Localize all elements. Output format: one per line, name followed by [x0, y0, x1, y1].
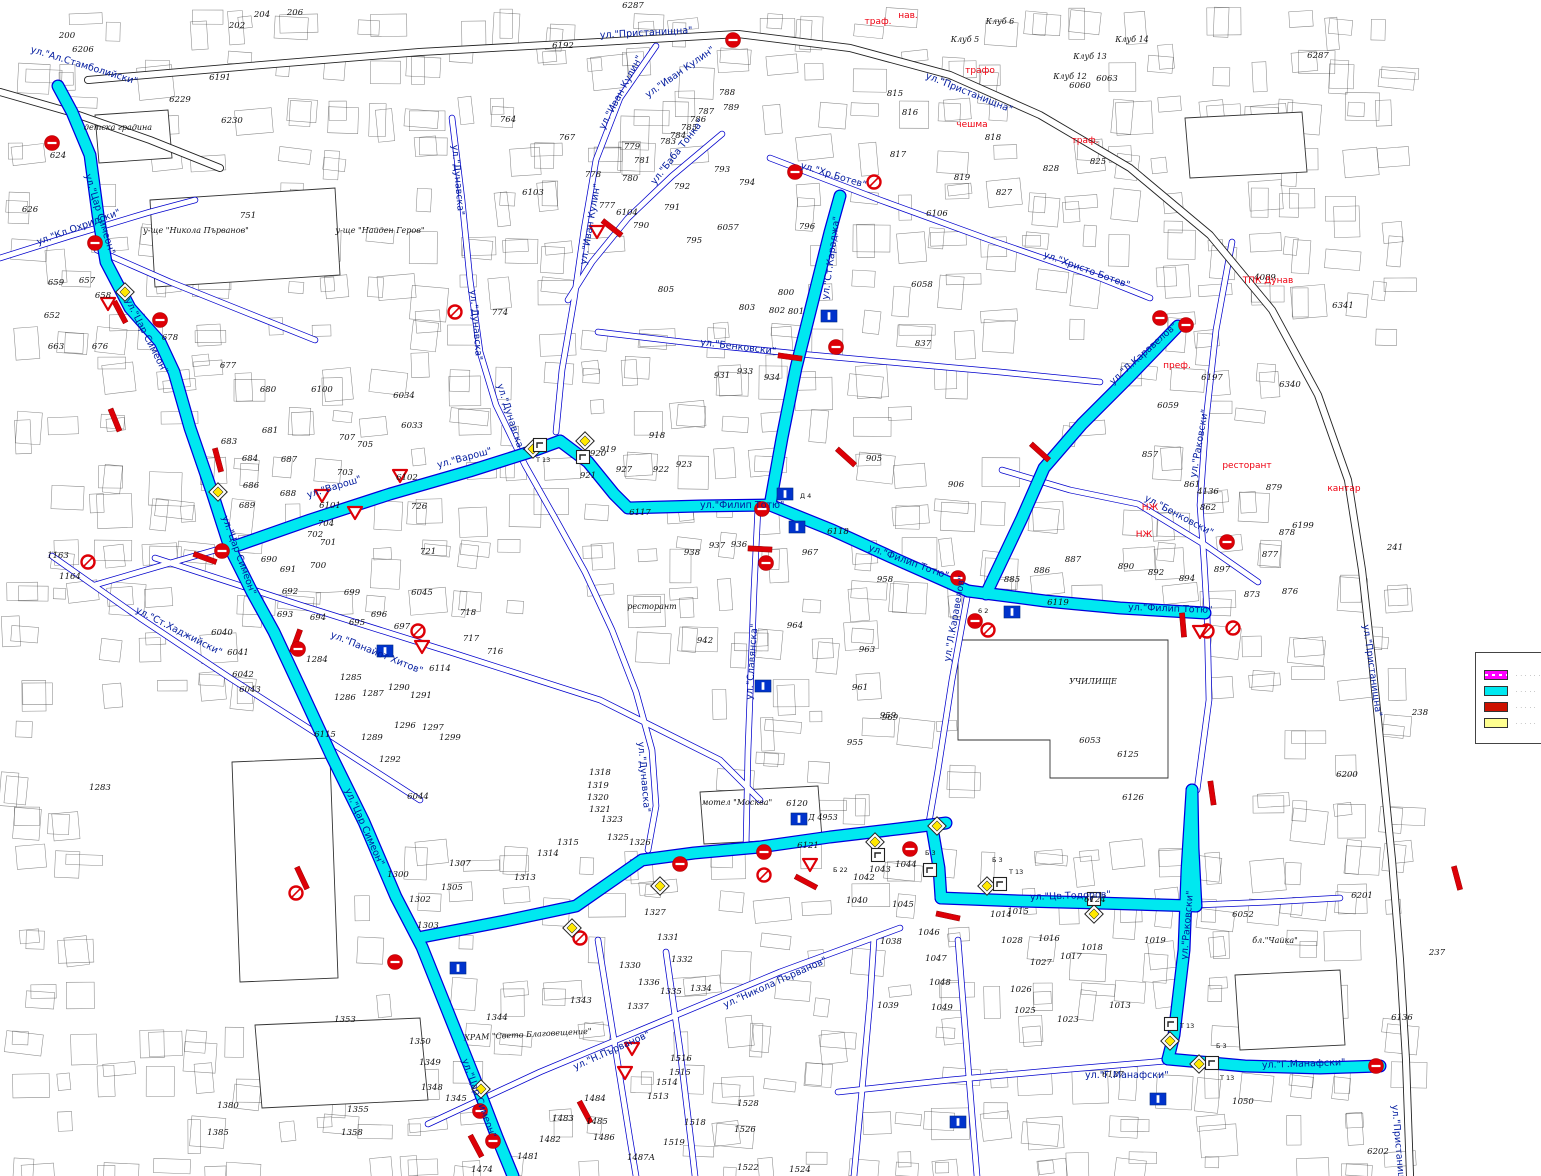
parcel-number: 1047 [925, 954, 947, 964]
parcel-number: 876 [1282, 587, 1299, 597]
parcel-number: 1289 [361, 733, 383, 743]
parcel-number: 1334 [690, 984, 712, 994]
parcel-number: 721 [420, 547, 436, 557]
street-label: ул."Л.Каравелов" [1108, 321, 1180, 387]
parcel-number: 942 [697, 636, 713, 646]
parcel-number: 815 [887, 89, 903, 99]
parcel-number: 1344 [486, 1013, 508, 1023]
parcel-number: 938 [684, 548, 701, 558]
parcel-number: 1027 [1030, 958, 1052, 968]
parcel-number: 1023 [1057, 1015, 1079, 1025]
parcel-number: 963 [859, 645, 875, 655]
parcel-number: 767 [559, 133, 576, 143]
parcel-number: 1302 [409, 895, 431, 905]
landmark-label: Д 4953 [807, 813, 837, 822]
sign-code-label: Б 3 [925, 849, 936, 857]
parcel-number: 202 [228, 21, 245, 31]
parcel-number: 6201 [1351, 891, 1373, 901]
legend-title: · · [1484, 659, 1541, 664]
parcel-number: 6104 [616, 208, 638, 218]
parcel-number: 818 [985, 133, 1002, 143]
parcel-number: 791 [664, 203, 680, 213]
parcel-number: 1485 [586, 1117, 608, 1127]
parcel-number: 676 [92, 342, 109, 352]
parcel-number: 1300 [387, 870, 409, 880]
legend-item-closed: · · · · · [1484, 702, 1541, 712]
parcel-number: 683 [221, 437, 237, 447]
parcel-number: 927 [616, 465, 633, 475]
parcel-number: 787 [698, 107, 715, 117]
road-closure-bar-icon [1029, 442, 1050, 462]
parcel-number: 688 [280, 489, 297, 499]
parcel-number: 1380 [217, 1101, 239, 1111]
parcel-number: 877 [1262, 550, 1279, 560]
parcel-number: 6192 [552, 41, 574, 51]
parcel-number: 805 [658, 285, 674, 295]
parcel-number: 933 [737, 367, 753, 377]
parcel-number: 6125 [1117, 750, 1139, 760]
parcel-number: 1164 [59, 572, 81, 582]
road-closure-bar-icon [794, 874, 818, 890]
facility-label-red: нав. [898, 11, 918, 21]
landmark-label: Клуб 5 [950, 35, 979, 44]
parcel-number: 1349 [419, 1058, 441, 1068]
parcel-number: 1292 [379, 755, 401, 765]
parcel-number: 1526 [734, 1125, 756, 1135]
parcel-number: 781 [634, 156, 650, 166]
parcel-number: 1330 [619, 961, 641, 971]
sign-code-label: Т 13 [1008, 868, 1023, 876]
parcel-number: 687 [281, 455, 298, 465]
parcel-number: 1481 [517, 1152, 539, 1162]
parcel-number: 1522 [737, 1163, 759, 1173]
parcel-number: 6200 [1336, 770, 1358, 780]
road-closure-bar-icon [212, 448, 223, 473]
parcel-number: 6340 [1279, 380, 1301, 390]
landmark-label: у-ще "Найден Геров" [334, 226, 424, 235]
sign-code-label: Т 13 [1219, 1074, 1234, 1082]
parcel-number: 691 [280, 565, 296, 575]
parcel-number: 879 [1266, 483, 1283, 493]
parcel-number: 816 [902, 108, 919, 118]
parcel-number: 1043 [869, 865, 891, 875]
parcel-number: 1483 [552, 1114, 574, 1124]
parcel-number: 700 [310, 561, 327, 571]
parcel-number: 857 [1142, 450, 1159, 460]
parcel-number: 1524 [789, 1165, 811, 1175]
landmark-label: УЧИЛИЩЕ [1069, 677, 1117, 686]
parcel-number: 905 [866, 454, 882, 464]
parcel-number: 1335 [660, 987, 682, 997]
yield-sign-icon [803, 859, 817, 871]
parcel-number: 958 [877, 575, 894, 585]
parcel-number: 1348 [421, 1083, 443, 1093]
parcel-number: 694 [310, 613, 326, 623]
parcel-number: 1290 [388, 683, 410, 693]
parcel-number: 1519 [663, 1138, 685, 1148]
parcel-number: 1487А [627, 1153, 655, 1163]
parcel-number: 6101 [319, 501, 341, 511]
parcel-number: 1318 [589, 768, 611, 778]
parcel-number: 1299 [439, 733, 461, 743]
parcel-number: 6102 [396, 473, 418, 483]
parcel-number: 1353 [334, 1015, 356, 1025]
parcel-number: 1305 [441, 883, 463, 893]
legend-label: · · · · · [1516, 721, 1536, 726]
parcel-number: 658 [95, 291, 112, 301]
parcel-number: 1016 [1038, 934, 1060, 944]
parcel-number: 796 [799, 222, 816, 232]
street-label: ул."Цар Симеон" [342, 787, 386, 868]
parcel-number: 918 [649, 431, 666, 441]
parcel-number: 967 [802, 548, 819, 558]
parcel-number: 1025 [1014, 1006, 1036, 1016]
signpost-icon [872, 849, 885, 862]
parcel-number: 657 [79, 276, 96, 286]
parcel-number: 206 [286, 8, 304, 18]
parcel-number: 923 [676, 460, 692, 470]
parcel-number: 801 [788, 307, 804, 317]
legend-item-other: · · · · · [1484, 718, 1541, 728]
parcel-number: 1343 [570, 996, 592, 1006]
parcel-number: 1484 [584, 1094, 606, 1104]
parcel-number: 697 [394, 622, 411, 632]
parcel-number: 1320 [587, 793, 609, 803]
parcel-number: 1046 [918, 928, 940, 938]
parcel-number: 717 [463, 634, 480, 644]
parcel-number: 6199 [1292, 521, 1314, 531]
parcel-number: 6202 [1367, 1147, 1389, 1157]
parcel-number: 931 [714, 371, 730, 381]
signpost-icon [1165, 1018, 1178, 1031]
parcel-number: 6118 [827, 527, 849, 537]
parcel-number: 778 [585, 170, 602, 180]
parcel-number: 792 [674, 182, 690, 192]
parcel-number: 663 [48, 342, 64, 352]
parcel-number: 6053 [1079, 736, 1101, 746]
parcel-number: 934 [764, 373, 780, 383]
landmark-label: Клуб 13 [1072, 52, 1107, 61]
parcel-number: 921 [580, 471, 596, 481]
parcel-number: 1323 [601, 815, 623, 825]
parcel-number: 707 [339, 433, 356, 443]
sign-code-label: Б 3 [992, 856, 1003, 864]
parcel-number: 693 [277, 610, 293, 620]
parcel-number: 6057 [717, 223, 739, 233]
parcel-number: 1050 [1232, 1097, 1254, 1107]
landmark-label: мотел "Москва" [702, 798, 772, 807]
road-closure-bar-icon [468, 1134, 484, 1158]
street-label: ул."Пристанищна" [1360, 624, 1384, 717]
parcel-number: 1019 [1144, 936, 1166, 946]
street-label: ул."Бенковски" [700, 337, 777, 357]
parcel-number: 1040 [846, 896, 868, 906]
parcel-number: 780 [622, 174, 639, 184]
map-stage: 2002022042066206623062296246267516192628… [0, 0, 1541, 1176]
parcel-number: 684 [242, 454, 258, 464]
parcel-number: 6287 [1307, 51, 1329, 61]
parcel-number: 626 [22, 205, 39, 215]
parcel-number: 764 [500, 115, 516, 125]
parcel-number: 1303 [417, 921, 439, 931]
parcel-number: 6060 [1069, 81, 1091, 91]
signpost-icon [994, 878, 1007, 891]
sign-code-label: 6 2 [978, 607, 988, 615]
facility-label-red: кантар [1327, 484, 1361, 494]
parcel-number: 699 [344, 588, 361, 598]
road-closure-bar-icon [835, 447, 856, 467]
parcel-number: 677 [220, 361, 237, 371]
parcel-number: 6059 [1157, 401, 1179, 411]
landmark-label: Клуб 6 [985, 17, 1014, 26]
parcel-number: 6045 [411, 588, 433, 598]
parcel-number: 817 [890, 150, 907, 160]
parcel-number: 6040 [211, 628, 233, 638]
parcel-number: 6114 [429, 664, 451, 674]
parcel-number: 1291 [410, 691, 432, 701]
parcel-number: 692 [282, 587, 298, 597]
sign-code-label: Т 13 [1179, 1022, 1194, 1030]
parcel-number: 794 [739, 178, 755, 188]
parcel-number: 1332 [671, 955, 693, 965]
parcel-number: 6206 [72, 45, 94, 55]
signpost-icon [577, 451, 590, 464]
sign-code-label: Б 22 [833, 866, 848, 874]
parcel-number: 204 [253, 10, 270, 20]
sign-code-label: Д 4 [800, 492, 811, 500]
parcel-number: 6042 [232, 670, 254, 680]
parcel-number: 890 [1118, 562, 1135, 572]
parcel-number: 1337 [627, 1002, 649, 1012]
parcel-number: 6103 [522, 188, 544, 198]
parcel-number: 1283 [89, 783, 111, 793]
parcel-number: 689 [239, 501, 256, 511]
parcel-number: 6119 [1047, 598, 1069, 608]
parcel-number: 1307 [449, 859, 471, 869]
parcel-number: 238 [1411, 708, 1429, 718]
parcel-number: 1017 [1060, 952, 1082, 962]
parcel-number: 1049 [931, 1003, 953, 1013]
parcel-number: 1286 [334, 693, 356, 703]
parcel-number: 200 [58, 31, 76, 41]
parcel-number: 969 [882, 713, 899, 723]
parcel-number: 887 [1065, 555, 1082, 565]
parcel-number: 1331 [657, 933, 679, 943]
facility-label-red: траф. [864, 17, 891, 27]
parcel-number: 690 [261, 555, 278, 565]
landmark-label: ХРАМ "Свето Благовещение" [463, 1027, 592, 1043]
street-label: ул."Дунавска" [449, 144, 466, 216]
parcel-number: 1319 [587, 781, 609, 791]
facility-label-red: преф. [1163, 361, 1191, 371]
parcel-number: 1015 [1007, 907, 1029, 917]
parcel-number: 1350 [409, 1037, 431, 1047]
parcel-number: 936 [731, 540, 748, 550]
signpost-icon [924, 864, 937, 877]
facility-label-red: НЖ [1142, 503, 1159, 513]
landmark-label: Клуб 12 [1052, 72, 1087, 81]
parcel-number: 862 [1200, 503, 1216, 513]
parcel-number: 6229 [169, 95, 191, 105]
legend-item-existing: · · · · · [1484, 686, 1541, 696]
parcel-number: 819 [954, 173, 971, 183]
parcel-number: 1325 [607, 833, 629, 843]
parcel-number: 1518 [684, 1118, 706, 1128]
parcel-number: 6121 [797, 841, 819, 851]
parcel-number: 1528 [737, 1099, 759, 1109]
parcel-number: 894 [1179, 574, 1195, 584]
parcel-number: 6063 [1096, 74, 1118, 84]
parcel-number: 6058 [911, 280, 933, 290]
parcel-number: 1039 [877, 1001, 899, 1011]
parcel-number: 1026 [1010, 985, 1032, 995]
parcel-number: 1516 [670, 1054, 692, 1064]
parcel-number: 802 [769, 306, 785, 316]
parcel-number: 1045 [892, 900, 914, 910]
parcel-number: 779 [624, 142, 641, 152]
sign-code-label: Б 3 [1216, 1042, 1227, 1050]
landmark-label: детска градина [84, 123, 152, 132]
road-closure-bar-icon [1208, 781, 1216, 805]
street-label: ул."Пристанищна" [924, 71, 1014, 116]
parcel-number: 681 [262, 426, 278, 436]
parcel-number: 885 [1004, 575, 1020, 585]
parcel-number: 6136 [1391, 1013, 1413, 1023]
parcel-number: 1321 [589, 805, 611, 815]
parcel-number: 6033 [401, 421, 423, 431]
parcel-number: 1486 [593, 1133, 615, 1143]
parcel-number: 1326 [629, 838, 651, 848]
landmark-label: бл."Чайка" [1252, 936, 1298, 945]
parcel-number: 828 [1043, 164, 1060, 174]
building-outline [232, 758, 338, 982]
road-closure-bar-icon [748, 546, 772, 552]
building-outline [1235, 970, 1345, 1050]
parcel-number: 1358 [341, 1128, 363, 1138]
parcel-number: 6120 [786, 799, 808, 809]
facility-label-red: ресторант [1222, 461, 1271, 471]
parcel-number: 1513 [647, 1092, 669, 1102]
parcel-number: 1515 [669, 1068, 691, 1078]
parcel-number: 961 [852, 683, 868, 693]
building-outline [1185, 112, 1307, 178]
parcel-number: 803 [739, 303, 755, 313]
parcel-number: 6106 [926, 209, 948, 219]
parcel-number: 1044 [895, 860, 917, 870]
parcel-number: 659 [48, 278, 65, 288]
parcel-number: 6126 [1122, 793, 1144, 803]
road-closure-bar-icon [936, 911, 961, 921]
parcel-number: 837 [915, 339, 932, 349]
parcel-number: 1345 [445, 1094, 467, 1104]
facility-label-red: трафо [965, 66, 995, 76]
legend-label: · · · · · [1516, 705, 1536, 710]
facility-label-red: НЖ [1136, 530, 1153, 540]
legend-label: · · · · · · · [1516, 673, 1541, 678]
parcel-number: 1163 [47, 551, 69, 561]
parcel-number: 1296 [394, 721, 416, 731]
parcel-number: 6341 [1332, 301, 1354, 311]
signpost-icon [534, 439, 547, 452]
parcel-number: 955 [847, 738, 863, 748]
parcel-number: 6044 [407, 792, 429, 802]
parcel-number: 6230 [221, 116, 243, 126]
parcel-number: 695 [349, 618, 365, 628]
street-label: ул."Г.Манафски" [1085, 1070, 1169, 1081]
parcel-number: 6117 [629, 508, 651, 518]
legend-item-planned: · · · · · · · [1484, 670, 1541, 680]
parcel-number: 726 [411, 502, 428, 512]
parcel-number: 1327 [644, 908, 666, 918]
parcel-number: 704 [318, 519, 334, 529]
parcel-number: 686 [243, 481, 260, 491]
parcel-number: 1336 [638, 978, 660, 988]
street-label: ул."Филип Тотю" [700, 500, 784, 511]
legend-swatch-yellow [1484, 718, 1508, 728]
parcel-number: 624 [50, 151, 66, 161]
parcel-number: 1355 [347, 1105, 369, 1115]
facility-label-red: ТПК Дунав [1242, 276, 1294, 286]
parcel-number: 1284 [306, 655, 328, 665]
parcel-number: 6052 [1232, 910, 1254, 920]
parcel-number: 789 [723, 103, 740, 113]
legend-label: · · · · · [1516, 689, 1536, 694]
parcel-number: 751 [240, 211, 256, 221]
parcel-number: 920 [590, 449, 607, 459]
parcel-number: 705 [357, 440, 373, 450]
parcel-number: 237 [1428, 948, 1446, 958]
parcel-number: 6043 [239, 685, 261, 695]
parcel-number: 774 [492, 308, 508, 318]
parcel-number: 892 [1148, 568, 1164, 578]
street-label: ул."Никола Първанов" [722, 955, 829, 1011]
parcel-number: 1385 [207, 1128, 229, 1138]
parcel-number: 906 [948, 480, 965, 490]
parcel-number: 790 [633, 221, 650, 231]
parcel-number: 1474 [471, 1165, 493, 1175]
parcel-number: 897 [1214, 565, 1231, 575]
parcel-number: 1287 [362, 689, 384, 699]
parcel-number: 922 [653, 465, 669, 475]
parcel-number: 873 [1244, 590, 1260, 600]
legend-swatch-red [1484, 702, 1508, 712]
parcel-number: 1482 [539, 1135, 561, 1145]
map-legend: · · · · · · · · · · · · · · · · · · · · … [1475, 652, 1541, 744]
parcel-number: 1315 [557, 838, 579, 848]
parcel-number: 6100 [311, 385, 333, 395]
parcel-number: 678 [162, 333, 179, 343]
signpost-icon [1206, 1057, 1219, 1070]
parcel-number: 6197 [1201, 373, 1223, 383]
parcel-number: 1313 [514, 873, 536, 883]
parcel-number: 718 [460, 608, 477, 618]
parcel-number: 702 [307, 530, 323, 540]
parcel-number: 795 [686, 236, 702, 246]
facility-label-red: траф. [1071, 136, 1098, 146]
landmark-label: Клуб 14 [1114, 35, 1149, 44]
road-closure-bar-icon [1451, 866, 1462, 891]
parcel-number: 937 [709, 541, 726, 551]
parcel-number: 6287 [622, 1, 644, 11]
parcel-number: 1013 [1109, 1001, 1131, 1011]
landmark-label: ресторант [627, 602, 677, 611]
legend-swatch-cyan [1484, 686, 1508, 696]
parcel-number: 241 [1386, 543, 1403, 553]
sign-code-label: Т 13 [535, 456, 550, 464]
parcel-number: 964 [787, 621, 803, 631]
parcel-number: 1285 [340, 673, 362, 683]
parcel-number: 652 [44, 311, 60, 321]
